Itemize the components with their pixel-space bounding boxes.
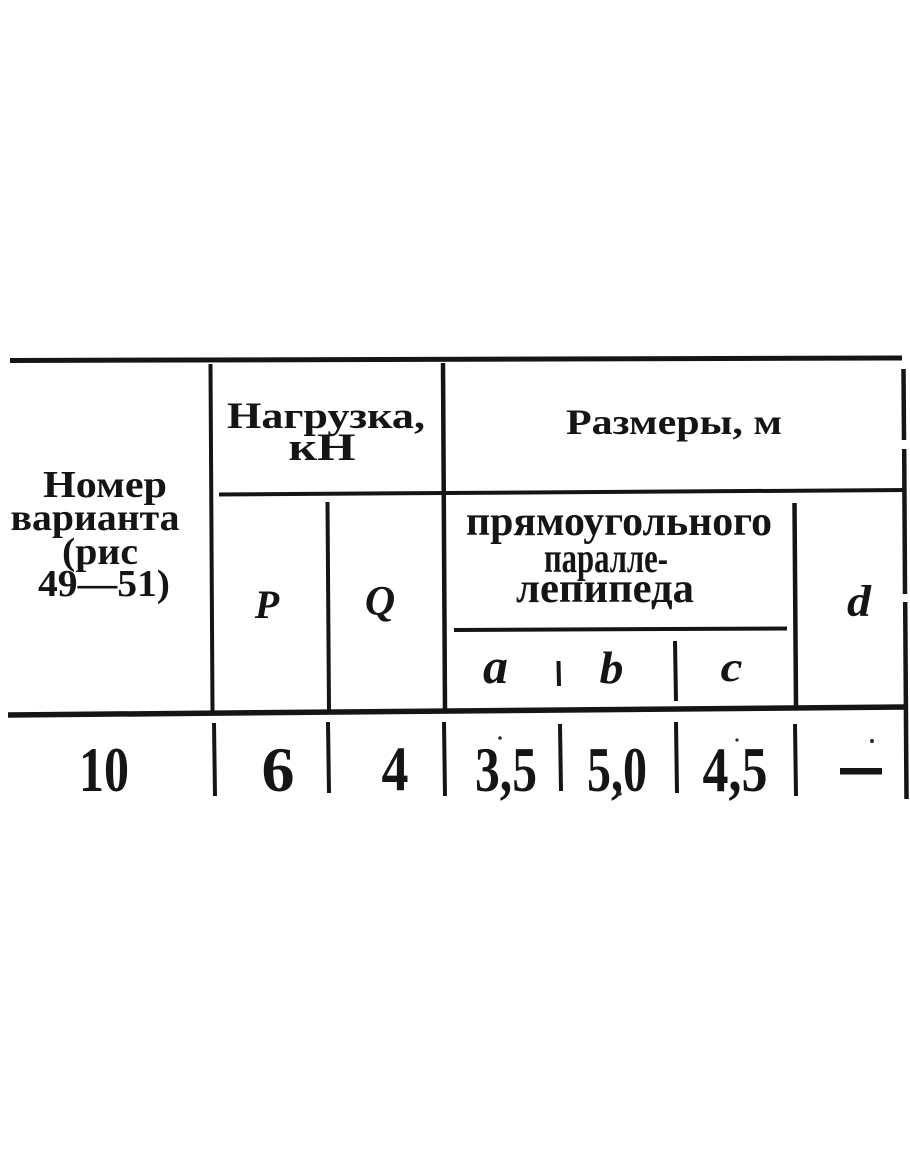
svg-text:кН: кН: [289, 426, 356, 469]
svg-text:Q: Q: [365, 579, 395, 625]
svg-text:49—51): 49—51): [38, 563, 170, 605]
svg-text:d: d: [847, 577, 872, 626]
svg-text:4,5: 4,5: [703, 735, 768, 805]
svg-text:c: c: [721, 645, 743, 691]
svg-text:Размеры, м: Размеры, м: [566, 402, 782, 442]
svg-text:4: 4: [382, 734, 409, 804]
svg-text:5,0: 5,0: [587, 735, 647, 805]
svg-text:P: P: [254, 582, 280, 627]
svg-text:b: b: [600, 642, 624, 693]
svg-text:a: a: [483, 638, 508, 694]
svg-text:лепипеда: лепипеда: [516, 566, 694, 612]
svg-text:10: 10: [79, 735, 129, 805]
svg-text:6: 6: [262, 735, 295, 805]
svg-text:3,5: 3,5: [475, 735, 537, 805]
